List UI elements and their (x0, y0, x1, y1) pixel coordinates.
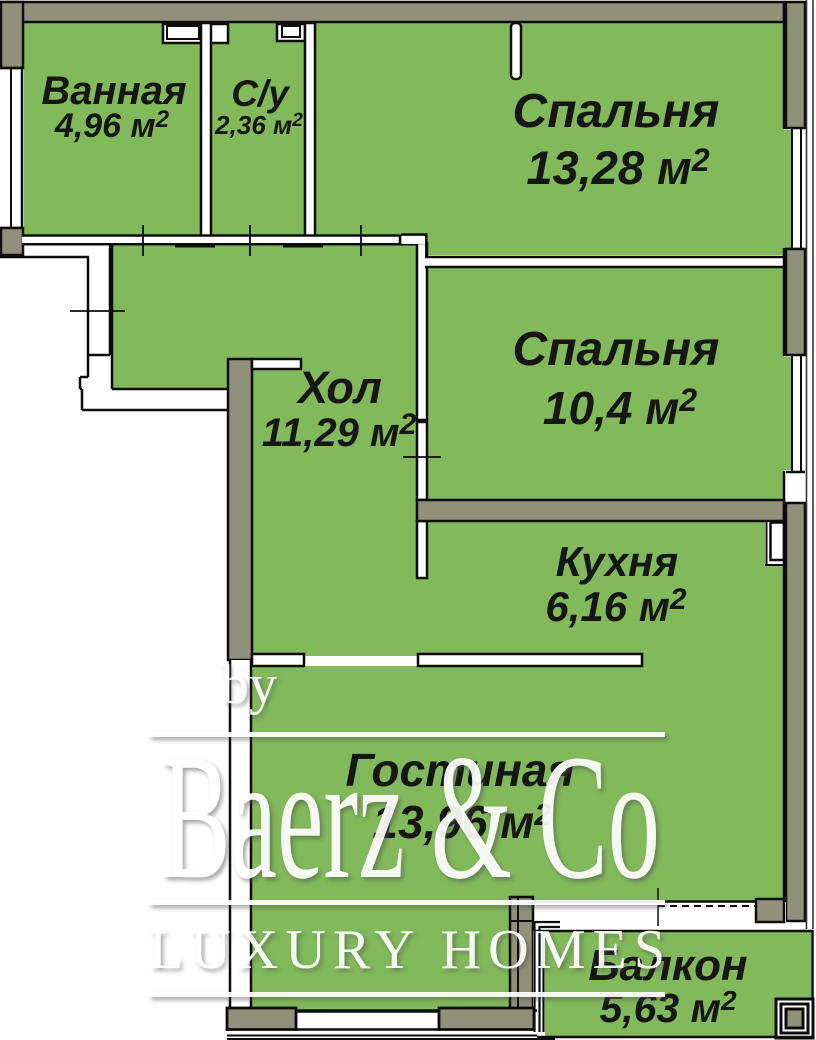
svg-text:6,16 м2: 6,16 м2 (545, 583, 686, 630)
svg-text:11,29 м2: 11,29 м2 (262, 408, 417, 455)
svg-text:С/у: С/у (231, 73, 291, 114)
svg-text:Baerz & Co: Baerz & Co (161, 717, 660, 916)
svg-text:10,4 м2: 10,4 м2 (543, 382, 697, 434)
svg-text:13,28 м2: 13,28 м2 (526, 141, 709, 194)
svg-text:Хол: Хол (295, 362, 382, 413)
svg-text:Спальня: Спальня (513, 85, 720, 138)
svg-text:Спальня: Спальня (513, 323, 720, 376)
svg-text:5,63 м2: 5,63 м2 (599, 985, 737, 1031)
svg-text:by: by (221, 654, 277, 716)
svg-text:Кухня: Кухня (556, 538, 679, 585)
svg-text:4,96 м2: 4,96 м2 (54, 106, 170, 145)
svg-text:2,36 м2: 2,36 м2 (214, 110, 303, 140)
